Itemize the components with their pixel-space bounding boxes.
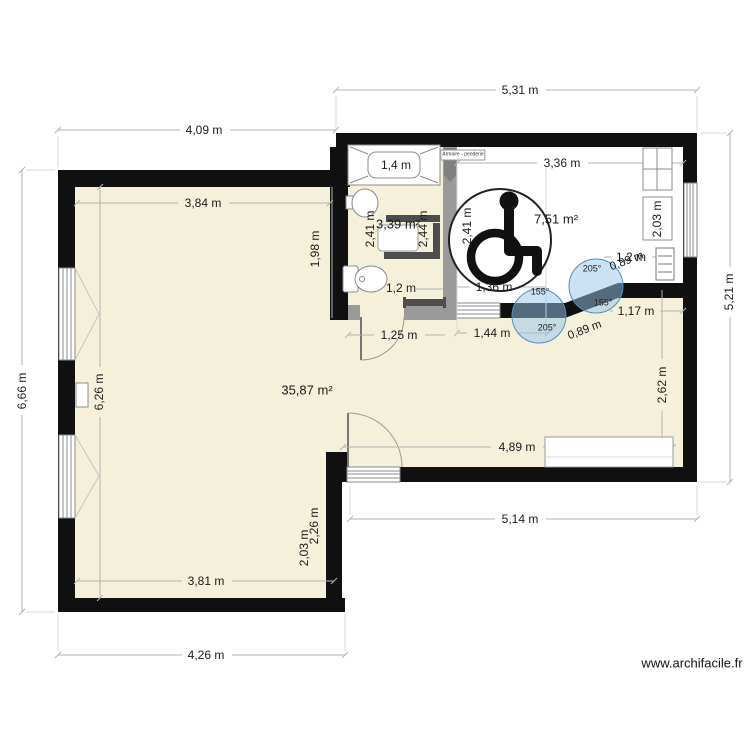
- entry-door-glazing[interactable]: [347, 467, 400, 482]
- dim-bottom-left-exterior[interactable]: 4,26 m: [188, 649, 225, 661]
- watermark: www.archifacile.fr: [641, 657, 742, 670]
- dim-right-exterior[interactable]: 5,21 m: [723, 274, 735, 311]
- dim-right-room-height[interactable]: 2,62 m: [656, 367, 668, 404]
- radiator-left[interactable]: [76, 383, 88, 407]
- dim-below-diagonal-right[interactable]: 1,17 m: [618, 305, 655, 317]
- dim-hall-door-zone[interactable]: 1,25 m: [381, 329, 418, 341]
- angle-upper-top: 205°: [583, 265, 602, 274]
- dim-living-left-height[interactable]: 6,26 m: [93, 374, 105, 411]
- dim-bathroom-height-left[interactable]: 2,41 m: [364, 211, 376, 248]
- dim-bathroom-wall-left[interactable]: 1,98 m: [309, 231, 321, 268]
- dim-bottom-right-exterior[interactable]: 5,14 m: [502, 513, 539, 525]
- angle-handle-lower[interactable]: [512, 289, 566, 343]
- wardrobe-name-label[interactable]: Armoire - penderie: [440, 150, 485, 161]
- window-right-bedroom[interactable]: [684, 183, 697, 257]
- sideboard[interactable]: [545, 437, 673, 467]
- dim-bedroom-top-width[interactable]: 3,36 m: [544, 157, 581, 169]
- dim-living-top-width[interactable]: 3,84 m: [185, 197, 222, 209]
- dim-living-bottom-width[interactable]: 3,81 m: [188, 575, 225, 587]
- dim-toilet-zone[interactable]: 1,2 m: [386, 282, 416, 294]
- dim-hall-width[interactable]: 1,44 m: [474, 327, 511, 339]
- dim-bedroom-height[interactable]: 2,41 m: [461, 208, 473, 245]
- bathroom-door-opening: [360, 304, 404, 321]
- window-bedroom-south[interactable]: [457, 303, 500, 318]
- wardrobe-upper[interactable]: [643, 148, 672, 190]
- dim-left-exterior[interactable]: 6,66 m: [16, 373, 28, 410]
- dim-bottom-room-width[interactable]: 4,89 m: [499, 441, 536, 453]
- radiator-right[interactable]: [656, 248, 674, 280]
- dim-bedroom-bottom[interactable]: 1,36 m: [476, 281, 513, 293]
- angle-lower-top: 155°: [531, 288, 550, 297]
- angle-lower-bottom: 205°: [538, 324, 557, 333]
- dim-top-exterior[interactable]: 5,31 m: [502, 84, 539, 96]
- bathroom-area-label: 3,39 m²: [376, 218, 420, 231]
- bedroom-area-label: 7,51 m²: [534, 213, 578, 226]
- dim-top-left-exterior[interactable]: 4,09 m: [186, 124, 223, 136]
- dim-bathroom-height-right[interactable]: 2,44 m: [417, 211, 429, 248]
- dim-bathtub-length[interactable]: 1,4 m: [381, 159, 411, 171]
- toilet[interactable]: [343, 266, 387, 292]
- dim-wardrobe-depth[interactable]: 2,03 m: [651, 201, 663, 238]
- living-area-label: 35,87 m²: [281, 384, 332, 397]
- dim-entry-wall-inner[interactable]: 2,03 m: [298, 530, 310, 567]
- floor-plan-drawing: [0, 0, 750, 750]
- angle-upper-bottom: 155°: [594, 299, 613, 308]
- floor-plan-canvas: 5,31 m 4,09 m 6,66 m 5,21 m 3,84 m 1,4 m…: [0, 0, 750, 750]
